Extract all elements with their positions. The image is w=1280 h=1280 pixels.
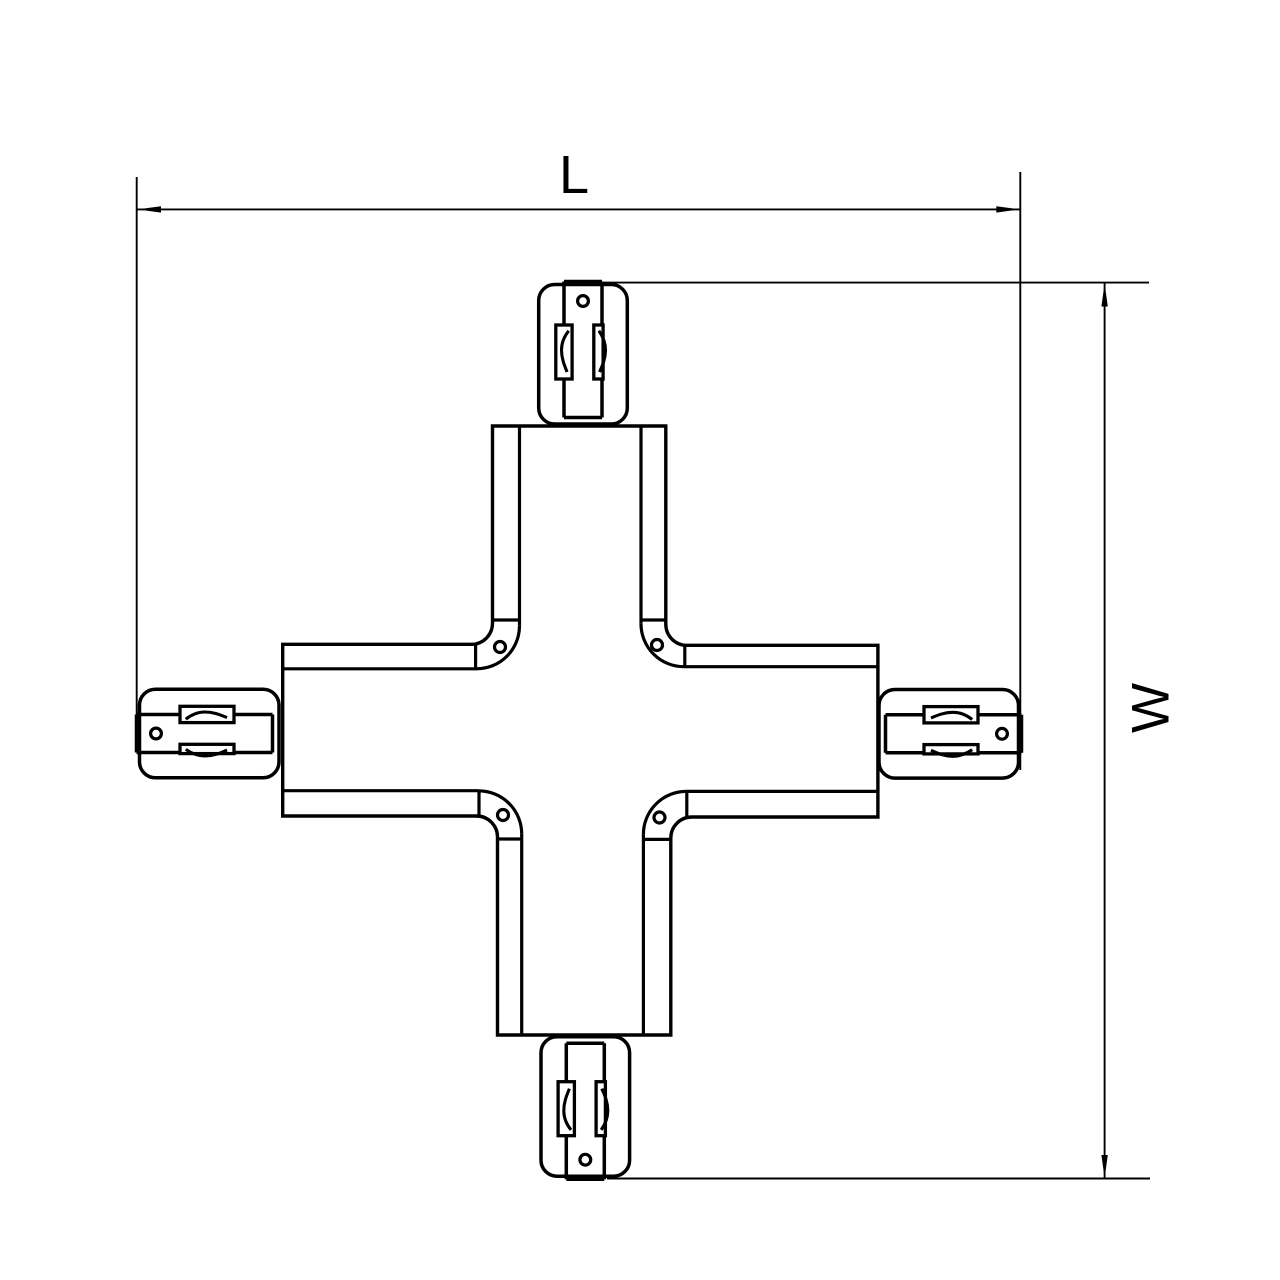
svg-text:W: W (1122, 683, 1181, 733)
svg-text:L: L (559, 145, 589, 205)
